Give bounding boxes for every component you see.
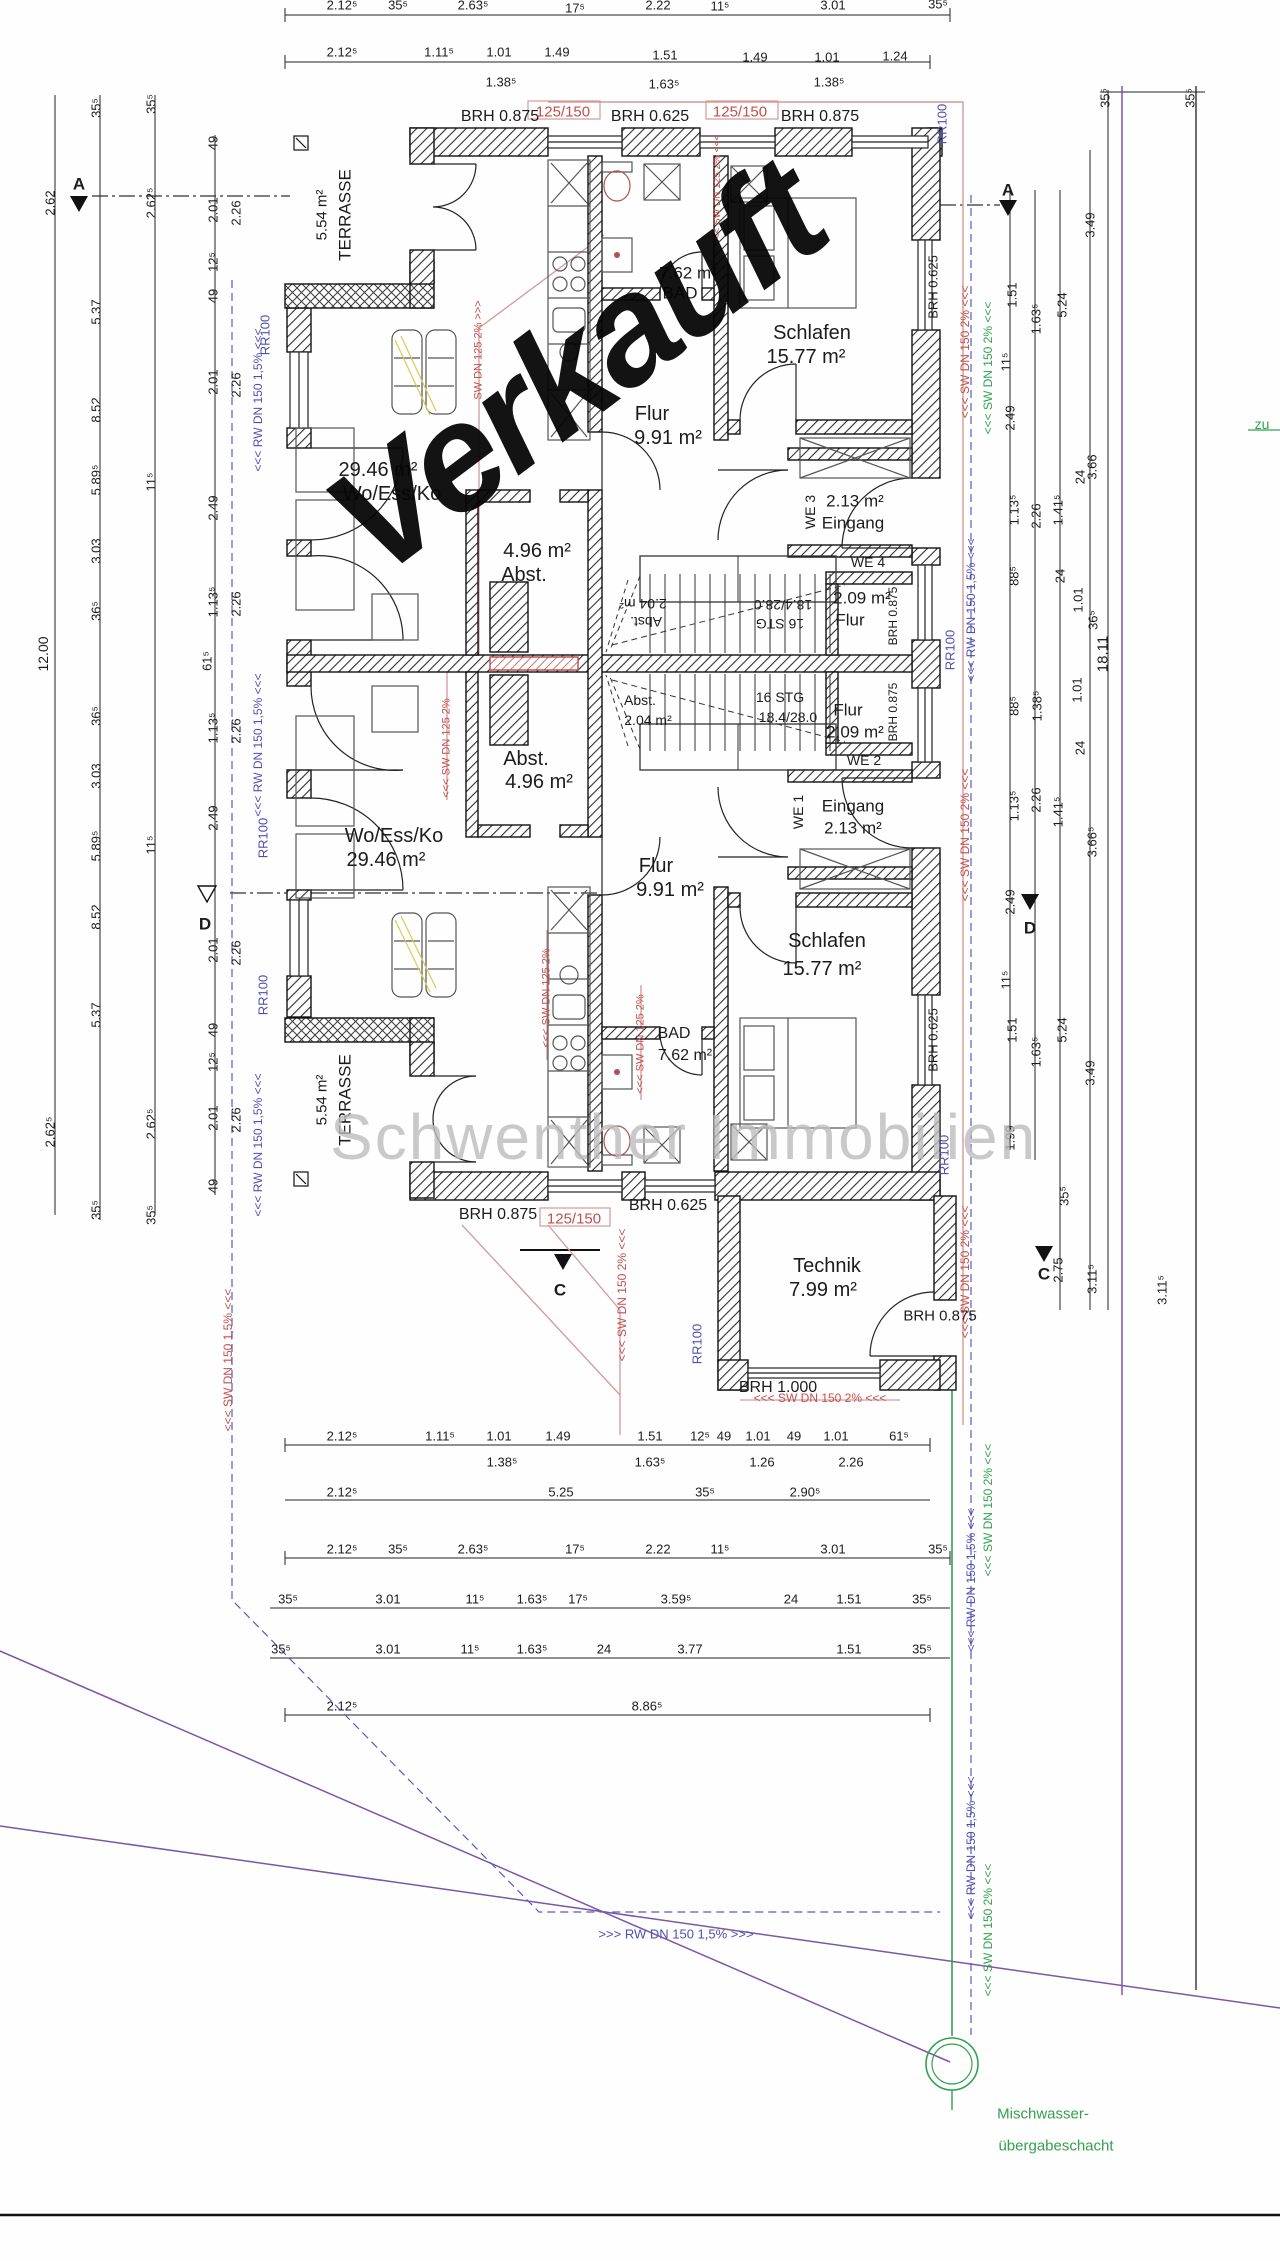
room-flur-lower-area: 9.91 m² bbox=[636, 880, 704, 900]
brh-label: BRH 0.875 bbox=[887, 587, 899, 646]
dim-top: 1.01 bbox=[486, 46, 511, 59]
dim-left: 49 bbox=[207, 1179, 220, 1193]
dim-left: 2.01 bbox=[207, 197, 220, 222]
room-schlafen-upper-area: 15.77 m² bbox=[767, 347, 846, 367]
brh-label: BRH 0.875 bbox=[459, 1207, 537, 1223]
window-size-label: 125/150 bbox=[713, 105, 767, 120]
note-zu: zu bbox=[1255, 417, 1270, 431]
room-schlafen-lower-area: 15.77 m² bbox=[783, 959, 862, 979]
dim-left: 2.01 bbox=[207, 369, 220, 394]
dim-bottom: 35⁵ bbox=[388, 1543, 408, 1556]
dim-left: 2.26 bbox=[230, 591, 243, 616]
pipe-rw-label: <<< RW DN 150 1,5% <<< bbox=[965, 1508, 977, 1651]
eingang-we1: Eingang bbox=[822, 798, 884, 815]
pipe-rr100-label: RR100 bbox=[259, 315, 272, 355]
dim-left: 8.52 bbox=[90, 904, 103, 929]
stair-lower-stg: 16 STG bbox=[756, 690, 804, 704]
dim-left: 2.26 bbox=[230, 200, 243, 225]
we4-label: WE 4 bbox=[851, 555, 885, 569]
dim-bottom: 17⁵ bbox=[568, 1593, 588, 1606]
dim-top: 2.12⁵ bbox=[327, 46, 358, 59]
flur-we4: Flur bbox=[835, 612, 864, 629]
shaft-label-line2: übergabeschacht bbox=[998, 2139, 1113, 2154]
dim-right: 24 bbox=[1074, 741, 1087, 755]
dim-bottom: 1.01 bbox=[486, 1430, 511, 1443]
we3-label: WE 3 bbox=[803, 495, 817, 529]
dim-bottom: 17⁵ bbox=[565, 1543, 585, 1556]
pipe-rr100-label: RR100 bbox=[257, 818, 270, 858]
pipe-rw-label: <<< RW DN 150 1,5% <<< bbox=[965, 538, 977, 681]
dim-bottom: 5.25 bbox=[548, 1486, 573, 1499]
room-abst-lower-area: 4.96 m² bbox=[505, 772, 573, 792]
dim-top: 1.38⁵ bbox=[814, 76, 845, 89]
dim-right: 11⁵ bbox=[1000, 353, 1013, 372]
pipe-sw125-label: <<< SW DN 125 2% bbox=[636, 994, 647, 1093]
dim-bottom: 3.01 bbox=[375, 1643, 400, 1656]
room-terrasse-upper-area: 5.54 m² bbox=[315, 190, 330, 241]
section-marker-a: A bbox=[73, 176, 85, 193]
dim-bottom: 11⁵ bbox=[466, 1593, 485, 1606]
dim-bottom: 61⁵ bbox=[889, 1430, 909, 1443]
shaft-label-line1: Mischwasser- bbox=[997, 2107, 1089, 2122]
dim-left: 1.13⁵ bbox=[207, 587, 220, 618]
dim-bottom: 1.51 bbox=[836, 1643, 861, 1656]
flur-we2-area: 2.09 m² bbox=[826, 724, 884, 741]
dim-bottom: 1.51 bbox=[637, 1430, 662, 1443]
dim-left: 36⁵ bbox=[90, 601, 103, 621]
dim-left: 12⁵ bbox=[207, 1052, 220, 1072]
watermark: Schwenther Immobilien bbox=[330, 1100, 1150, 1174]
dim-left: 2.01 bbox=[207, 1105, 220, 1130]
pipe-sw-label: <<< SW DN 150 2% <<< bbox=[754, 1392, 887, 1404]
room-abst-lower: Abst. bbox=[503, 749, 549, 769]
dim-right: 1.41⁵ bbox=[1052, 495, 1065, 526]
dim-bottom: 1.63⁵ bbox=[517, 1593, 548, 1606]
dim-right: 1.41⁵ bbox=[1052, 797, 1065, 828]
room-schlafen-lower: Schlafen bbox=[788, 931, 866, 951]
room-technik-area: 7.99 m² bbox=[789, 1280, 857, 1300]
pipe-rw-note: >>> RW DN 150 1,5% >>> bbox=[598, 1928, 753, 1941]
dim-bottom: 3.59⁵ bbox=[661, 1593, 692, 1606]
dim-bottom: 35⁵ bbox=[928, 1543, 948, 1556]
dim-top: 2.12⁵ bbox=[327, 0, 358, 12]
dim-right: 1.63⁵ bbox=[1030, 1037, 1043, 1068]
dim-right: 3.49 bbox=[1084, 212, 1097, 237]
dim-bottom: 1.49 bbox=[545, 1430, 570, 1443]
pipe-rw-label: <<< RW DN 150 1,5% <<< bbox=[965, 1776, 977, 1919]
dim-left: 1.13⁵ bbox=[207, 713, 220, 744]
pipe-sw-label: <<< SW DN 150 1,5% <<< bbox=[222, 1289, 234, 1432]
dim-right: 1.01 bbox=[1071, 677, 1084, 702]
dim-right: 36⁵ bbox=[1087, 610, 1100, 630]
dim-left: 49 bbox=[207, 289, 220, 303]
room-terrasse-lower-area: 5.54 m² bbox=[315, 1075, 330, 1126]
dim-bottom: 1.51 bbox=[836, 1593, 861, 1606]
dim-left: 35⁵ bbox=[145, 1205, 158, 1225]
dim-left: 49 bbox=[207, 136, 220, 150]
dim-right: 3.11⁵ bbox=[1156, 1275, 1169, 1305]
dim-bottom: 2.90⁵ bbox=[790, 1486, 821, 1499]
floorplan-page: 5.54 m²TERRASSE29.46 m²Wo/Ess/Ko7.62 m²B… bbox=[0, 0, 1280, 2261]
dim-left: 2.62⁵ bbox=[145, 188, 158, 219]
flur-we4-area: 2.09 m² bbox=[833, 590, 891, 607]
dim-right: 5.24 bbox=[1056, 1017, 1069, 1042]
brh-label: BRH 0.875 bbox=[461, 109, 539, 125]
dim-bottom: 2.12⁵ bbox=[327, 1700, 358, 1713]
pipe-sw-label: <<< SW DN 150 2% <<< bbox=[959, 286, 971, 419]
dim-bottom: 8.86⁵ bbox=[632, 1700, 663, 1713]
dim-left: 36⁵ bbox=[90, 706, 103, 726]
dim-left: 49 bbox=[207, 1023, 220, 1037]
room-bad-lower: BAD bbox=[658, 1026, 691, 1042]
stair-lower-ratio: 18.4/28.0 bbox=[759, 710, 817, 724]
dim-right: 1.38⁵ bbox=[1031, 691, 1044, 722]
dim-left: 5.89⁵ bbox=[90, 465, 103, 496]
dim-right: 1.51 bbox=[1006, 1017, 1019, 1042]
section-marker-c: C bbox=[1038, 1266, 1050, 1283]
pipe-sw-label: <<< SW DN 150 2% <<< bbox=[982, 1444, 994, 1577]
room-abst-upper-area: 4.96 m² bbox=[503, 541, 571, 561]
dim-right: 3.49 bbox=[1084, 1060, 1097, 1085]
window-size-label: 125/150 bbox=[547, 1212, 601, 1227]
dim-bottom: 1.01 bbox=[823, 1430, 848, 1443]
brh-label: BRH 0.875 bbox=[781, 109, 859, 125]
dim-right: 2.49 bbox=[1004, 405, 1017, 430]
dim-right: 24 bbox=[1054, 569, 1067, 583]
dim-bottom: 49 bbox=[787, 1430, 801, 1443]
dim-left: 11⁵ bbox=[145, 836, 158, 855]
dim-left: 2.62 bbox=[44, 190, 57, 215]
dim-left: 35⁵ bbox=[90, 98, 103, 118]
pipe-sw125-label: <<< SW DN 125 2% bbox=[542, 948, 553, 1047]
dim-bottom: 12⁵ bbox=[690, 1430, 710, 1443]
dim-bottom: 35⁵ bbox=[912, 1643, 932, 1656]
pipe-sw-label: <<< SW DN 150 2% <<< bbox=[959, 769, 971, 902]
dim-right: 1.63⁵ bbox=[1030, 304, 1043, 335]
dim-bottom: 11⁵ bbox=[461, 1643, 480, 1656]
pipe-sw125-label: <<< SW DN 125 2% bbox=[442, 698, 453, 797]
dim-bottom: 1.38⁵ bbox=[487, 1456, 518, 1469]
room-abst-upper: Abst. bbox=[501, 565, 547, 585]
pipe-sw-label: <<< SW DN 150 2% <<< bbox=[959, 1206, 971, 1339]
room-woessko-lower: Wo/Ess/Ko bbox=[345, 826, 444, 846]
brh-label: BRH 0.625 bbox=[927, 1008, 940, 1072]
dim-bottom: 24 bbox=[784, 1593, 798, 1606]
dim-top: 17⁵ bbox=[565, 2, 585, 15]
room-terrasse-upper: TERRASSE bbox=[337, 169, 354, 261]
section-marker-a: A bbox=[1002, 182, 1014, 199]
dim-right: 1.51 bbox=[1006, 282, 1019, 307]
dim-left: 2.62⁵ bbox=[145, 1109, 158, 1140]
dim-bottom: 35⁵ bbox=[912, 1593, 932, 1606]
pipe-rr100-label: RR100 bbox=[944, 630, 957, 670]
dim-right: 2.75 bbox=[1052, 1257, 1065, 1282]
dim-right: 11⁵ bbox=[1000, 971, 1013, 990]
dim-bottom: 1.01 bbox=[745, 1430, 770, 1443]
dim-right: 1.13⁵ bbox=[1008, 495, 1021, 526]
room-bad-lower-area: 7.62 m² bbox=[658, 1048, 712, 1064]
dim-left: 2.01 bbox=[207, 937, 220, 962]
pipe-rw-label: <<< RW DN 150 1,5% <<< bbox=[252, 673, 264, 816]
dim-left: 2.26 bbox=[230, 372, 243, 397]
dim-right: 3.11⁵ bbox=[1086, 1264, 1099, 1294]
dim-bottom: 3.01 bbox=[375, 1593, 400, 1606]
brh-label: BRH 0.625 bbox=[611, 109, 689, 125]
dim-right: 88⁵ bbox=[1008, 696, 1021, 716]
dim-bottom: 2.12⁵ bbox=[327, 1430, 358, 1443]
dim-left: 5.37 bbox=[90, 299, 103, 324]
dim-right: 1.13⁵ bbox=[1008, 791, 1021, 822]
stair-upper-abst-area: 2.04 m² bbox=[619, 597, 666, 611]
eingang-we3-area: 2.13 m² bbox=[826, 493, 884, 510]
dim-bottom: 2.22 bbox=[645, 1543, 670, 1556]
pipe-sw-label: <<< SW DN 150 2% <<< bbox=[982, 1864, 994, 1997]
pipe-rr100-label: RR100 bbox=[691, 1324, 704, 1364]
stair-upper-abst: Abst. bbox=[630, 615, 662, 629]
room-technik: Technik bbox=[793, 1256, 861, 1276]
pipe-rw-label: <<< RW DN 150 1,5% <<< bbox=[252, 1073, 264, 1216]
dim-left: 2.26 bbox=[230, 940, 243, 965]
stair-upper-stg: 16 STG bbox=[756, 617, 804, 631]
dim-top: 1.63⁵ bbox=[649, 78, 680, 91]
dim-right: 3.66⁵ bbox=[1086, 827, 1099, 858]
dim-bottom: 35⁵ bbox=[278, 1593, 298, 1606]
dim-left: 2.26 bbox=[230, 1107, 243, 1132]
dim-left: 61⁵ bbox=[201, 651, 214, 671]
section-marker-d: D bbox=[199, 916, 211, 933]
dim-top: 35⁵ bbox=[388, 0, 408, 12]
room-schlafen-upper: Schlafen bbox=[773, 323, 851, 343]
section-marker-c: C bbox=[554, 1282, 566, 1299]
stair-lower-abst: Abst. bbox=[624, 693, 656, 707]
dim-left: 2.62⁵ bbox=[44, 1117, 57, 1148]
dim-left: 11⁵ bbox=[145, 473, 158, 492]
dim-bottom: 1.11⁵ bbox=[425, 1430, 455, 1443]
eingang-we3: Eingang bbox=[822, 515, 884, 532]
dim-right: 3.66 bbox=[1086, 454, 1099, 479]
dim-top: 1.51 bbox=[652, 49, 677, 62]
pipe-rr100-label: RR100 bbox=[257, 975, 270, 1015]
dim-left: 8.52 bbox=[90, 397, 103, 422]
dim-left: 12.00 bbox=[36, 636, 50, 671]
dim-top: 1.11⁵ bbox=[424, 46, 454, 59]
dim-top: 35⁵ bbox=[928, 0, 948, 11]
dim-top: 2.63⁵ bbox=[458, 0, 489, 12]
dim-top: 1.24 bbox=[882, 50, 907, 63]
dim-left: 35⁵ bbox=[145, 94, 158, 114]
dim-bottom: 1.26 bbox=[749, 1456, 774, 1469]
stair-lower-abst-area: 2.04 m² bbox=[624, 713, 671, 727]
dim-bottom: 1.63⁵ bbox=[635, 1456, 666, 1469]
dim-top: 11⁵ bbox=[711, 0, 730, 13]
dim-left: 12⁵ bbox=[207, 252, 220, 272]
dim-bottom: 2.26 bbox=[838, 1456, 863, 1469]
dim-top: 1.49 bbox=[544, 46, 569, 59]
room-flur-lower: Flur bbox=[639, 856, 673, 876]
dim-left: 2.26 bbox=[230, 718, 243, 743]
brh-label: BRH 0.875 bbox=[887, 683, 899, 742]
dim-bottom: 24 bbox=[597, 1643, 611, 1656]
room-woessko-lower-area: 29.46 m² bbox=[347, 850, 426, 870]
section-marker-d: D bbox=[1024, 920, 1036, 937]
dim-right: 2.26 bbox=[1030, 787, 1043, 812]
dim-bottom: 2.12⁵ bbox=[327, 1486, 358, 1499]
dim-top: 1.01 bbox=[814, 51, 839, 64]
dim-top: 3.01 bbox=[820, 0, 845, 12]
dim-left: 3.03 bbox=[90, 763, 103, 788]
dim-bottom: 35⁵ bbox=[695, 1486, 715, 1499]
dim-right: 2.49 bbox=[1004, 889, 1017, 914]
dim-left: 2.49 bbox=[207, 495, 220, 520]
dim-left: 5.37 bbox=[90, 1002, 103, 1027]
dim-left: 35⁵ bbox=[90, 1200, 103, 1220]
eingang-we1-area: 2.13 m² bbox=[824, 820, 882, 837]
pipe-sw-label: <<< SW DN 150 2% <<< bbox=[982, 302, 994, 435]
dim-left: 3.03 bbox=[90, 538, 103, 563]
dim-right: 2.26 bbox=[1030, 503, 1043, 528]
dim-left: 5.89⁵ bbox=[90, 831, 103, 862]
we1-label: WE 1 bbox=[791, 795, 805, 829]
pipe-rr100-label: RR100 bbox=[936, 104, 949, 144]
we2-label: WE 2 bbox=[847, 753, 881, 767]
dim-top: 1.49 bbox=[742, 51, 767, 64]
dim-right: 5.24 bbox=[1056, 292, 1069, 317]
dim-right: 18.11 bbox=[1096, 636, 1111, 672]
dim-bottom: 3.77 bbox=[677, 1643, 702, 1656]
dim-right: 35⁵ bbox=[1058, 1186, 1071, 1206]
window-size-label: 125/150 bbox=[536, 105, 590, 120]
dim-right: 35⁵ bbox=[1099, 88, 1112, 108]
dim-bottom: 2.63⁵ bbox=[458, 1543, 489, 1556]
pipe-sw-label: <<< SW DN 150 2% <<< bbox=[616, 1229, 628, 1362]
dim-bottom: 11⁵ bbox=[711, 1543, 730, 1556]
dim-bottom: 49 bbox=[717, 1430, 731, 1443]
flur-we2: Flur bbox=[833, 702, 862, 719]
dim-bottom: 3.01 bbox=[820, 1543, 845, 1556]
dim-right: 1.01 bbox=[1072, 587, 1085, 612]
dim-bottom: 35⁵ bbox=[271, 1643, 291, 1656]
dim-right: 88⁵ bbox=[1008, 566, 1021, 586]
dim-bottom: 2.12⁵ bbox=[327, 1543, 358, 1556]
dim-right: 35⁵ bbox=[1184, 88, 1197, 108]
dim-left: 2.49 bbox=[207, 805, 220, 830]
stair-upper-ratio: 18.4/28.0 bbox=[754, 598, 812, 612]
dim-top: 2.22 bbox=[645, 0, 670, 12]
brh-label: BRH 0.625 bbox=[927, 255, 940, 319]
dim-top: 1.38⁵ bbox=[486, 76, 517, 89]
brh-label: BRH 0.625 bbox=[629, 1198, 707, 1214]
dim-bottom: 1.63⁵ bbox=[517, 1643, 548, 1656]
room-flur-upper-area: 9.91 m² bbox=[634, 428, 702, 448]
